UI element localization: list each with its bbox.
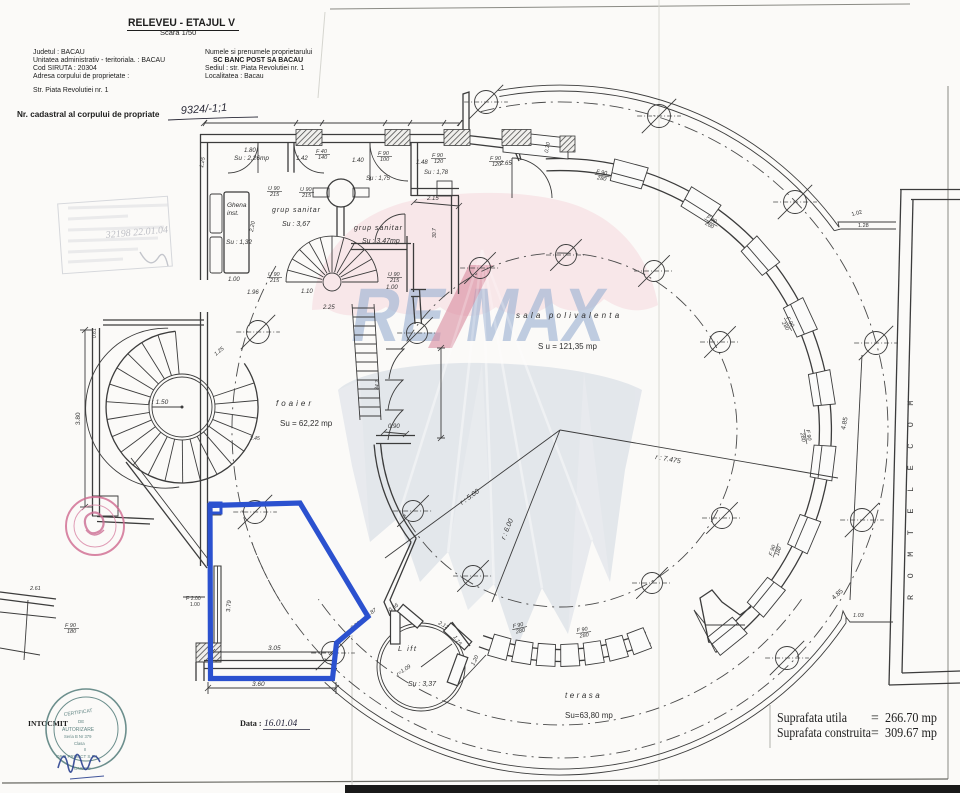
svg-text:Str. Piata Revolutiei nr. 1: Str. Piata Revolutiei nr. 1 bbox=[33, 87, 109, 94]
svg-text:1.40: 1.40 bbox=[352, 158, 364, 164]
svg-text:266.70 mp: 266.70 mp bbox=[885, 710, 937, 725]
svg-text:Ghena: Ghena bbox=[227, 202, 247, 209]
svg-text:II: II bbox=[84, 747, 86, 752]
svg-text:1.80: 1.80 bbox=[244, 148, 256, 154]
svg-text:Su : 1,78: Su : 1,78 bbox=[424, 170, 449, 176]
svg-text:Su : 2,26mp: Su : 2,26mp bbox=[234, 155, 269, 162]
svg-text:Su : 3,67: Su : 3,67 bbox=[282, 221, 311, 228]
svg-text:1.28: 1.28 bbox=[858, 223, 869, 229]
svg-text:3.79: 3.79 bbox=[226, 599, 233, 612]
svg-text:L ift: L ift bbox=[398, 644, 417, 653]
svg-text:2.45: 2.45 bbox=[249, 436, 260, 442]
svg-text:Su=63,80 mp: Su=63,80 mp bbox=[565, 711, 613, 720]
svg-text:Numele si prenumele proprietar: Numele si prenumele proprietarului bbox=[205, 49, 313, 56]
svg-text:=: = bbox=[871, 725, 879, 740]
svg-text:215: 215 bbox=[389, 278, 400, 284]
svg-text:3.05: 3.05 bbox=[268, 645, 281, 652]
svg-text:Su : 1,32: Su : 1,32 bbox=[226, 239, 252, 246]
svg-text:1.48: 1.48 bbox=[416, 160, 428, 166]
svg-text:Judetul : BACAU: Judetul : BACAU bbox=[33, 49, 85, 56]
svg-text:140: 140 bbox=[318, 155, 328, 161]
svg-text:Su : 3,47mp: Su : 3,47mp bbox=[362, 238, 400, 245]
svg-text:Su : 3,37: Su : 3,37 bbox=[408, 681, 437, 688]
svg-text:1.42: 1.42 bbox=[296, 156, 308, 162]
svg-text:Localitatea : Bacau: Localitatea : Bacau bbox=[205, 73, 264, 80]
svg-text:1.20: 1.20 bbox=[470, 654, 480, 667]
svg-text:1.25: 1.25 bbox=[199, 156, 207, 169]
svg-text:16.01.04: 16.01.04 bbox=[264, 719, 298, 729]
svg-text:1.03: 1.03 bbox=[853, 613, 865, 619]
svg-text:3.80: 3.80 bbox=[75, 412, 82, 425]
svg-text:S u = 121,35 mp: S u = 121,35 mp bbox=[538, 342, 597, 351]
svg-text:Seria B Nr 379: Seria B Nr 379 bbox=[64, 734, 92, 739]
svg-text:0.90: 0.90 bbox=[388, 424, 400, 430]
svg-text:Nr. cadastral al corpului de p: Nr. cadastral al corpului de propriate bbox=[17, 110, 160, 119]
svg-text:SC BANC POST SA BACAU: SC BANC POST SA BACAU bbox=[213, 57, 303, 64]
svg-text:r=1.09: r=1.09 bbox=[396, 664, 412, 678]
svg-text:4.85: 4.85 bbox=[831, 588, 845, 602]
svg-text:1.00: 1.00 bbox=[190, 602, 200, 608]
svg-text:Su : 1,75: Su : 1,75 bbox=[366, 176, 391, 182]
svg-text:4.85: 4.85 bbox=[840, 416, 850, 430]
svg-text:34.7: 34.7 bbox=[374, 380, 381, 390]
svg-text:terasa: terasa bbox=[565, 691, 602, 700]
svg-text:215: 215 bbox=[269, 278, 280, 284]
svg-text:DE: DE bbox=[78, 719, 84, 724]
svg-text:1.96: 1.96 bbox=[247, 290, 259, 296]
svg-text:sala polivalenta: sala polivalenta bbox=[516, 311, 622, 320]
svg-text:Sediul : str. Piata Revolutie: Sediul : str. Piata Revolutiei nr. 1 bbox=[205, 65, 304, 72]
svg-text:1.00: 1.00 bbox=[386, 285, 398, 291]
svg-text:Su = 62,22 mp: Su = 62,22 mp bbox=[280, 419, 333, 428]
svg-text:280: 280 bbox=[578, 632, 590, 639]
svg-text:2.15: 2.15 bbox=[426, 196, 439, 202]
svg-text:1.02: 1.02 bbox=[851, 210, 863, 218]
svg-text:Data :: Data : bbox=[240, 719, 262, 728]
svg-text:Clasa: Clasa bbox=[74, 741, 85, 746]
svg-text:30.7: 30.7 bbox=[432, 228, 438, 238]
svg-text:309.67 mp: 309.67 mp bbox=[885, 725, 937, 740]
svg-text:Scara 1/50: Scara 1/50 bbox=[160, 28, 196, 37]
svg-text:2.25: 2.25 bbox=[322, 305, 335, 311]
svg-text:Suprafata utila: Suprafata utila bbox=[777, 710, 847, 725]
svg-text:1.00: 1.00 bbox=[228, 277, 240, 283]
svg-text:215: 215 bbox=[301, 193, 312, 199]
svg-text:180: 180 bbox=[67, 629, 77, 635]
svg-text:=: = bbox=[871, 710, 879, 725]
svg-text:100: 100 bbox=[380, 157, 390, 163]
svg-text:foaier: foaier bbox=[276, 399, 314, 408]
svg-text:1.25: 1.25 bbox=[213, 345, 226, 357]
svg-text:grup sanitar: grup sanitar bbox=[354, 225, 403, 232]
svg-text:r : 1.50: r : 1.50 bbox=[148, 399, 169, 406]
svg-text:215: 215 bbox=[269, 192, 280, 198]
svg-text:CERTIFICAT: CERTIFICAT bbox=[63, 708, 93, 718]
svg-text:Adresa corpului de proprietate: Adresa corpului de proprietate : bbox=[33, 73, 129, 80]
svg-text:0.61: 0.61 bbox=[92, 328, 98, 338]
svg-text:Unitatea administrativ - terit: Unitatea administrativ - teritoriala. : … bbox=[33, 57, 165, 64]
svg-text:Cod SIRUTA : 20304: Cod SIRUTA : 20304 bbox=[33, 65, 97, 72]
svg-text:120: 120 bbox=[492, 162, 502, 168]
svg-text:120: 120 bbox=[434, 159, 444, 165]
svg-text:3.60: 3.60 bbox=[252, 681, 265, 688]
svg-text:9324/-1;1: 9324/-1;1 bbox=[180, 102, 227, 117]
svg-text:1.10: 1.10 bbox=[301, 289, 313, 295]
svg-text:ROMTELECOM: ROMTELECOM bbox=[906, 384, 916, 600]
svg-text:inst.: inst. bbox=[227, 210, 239, 217]
svg-text:grup sanitar: grup sanitar bbox=[272, 207, 321, 214]
svg-text:2.61: 2.61 bbox=[29, 586, 41, 592]
svg-text:2.20: 2.20 bbox=[249, 220, 257, 233]
svg-text:AUTORIZARE: AUTORIZARE bbox=[62, 727, 95, 733]
svg-text:Suprafata construita: Suprafata construita bbox=[777, 725, 871, 740]
